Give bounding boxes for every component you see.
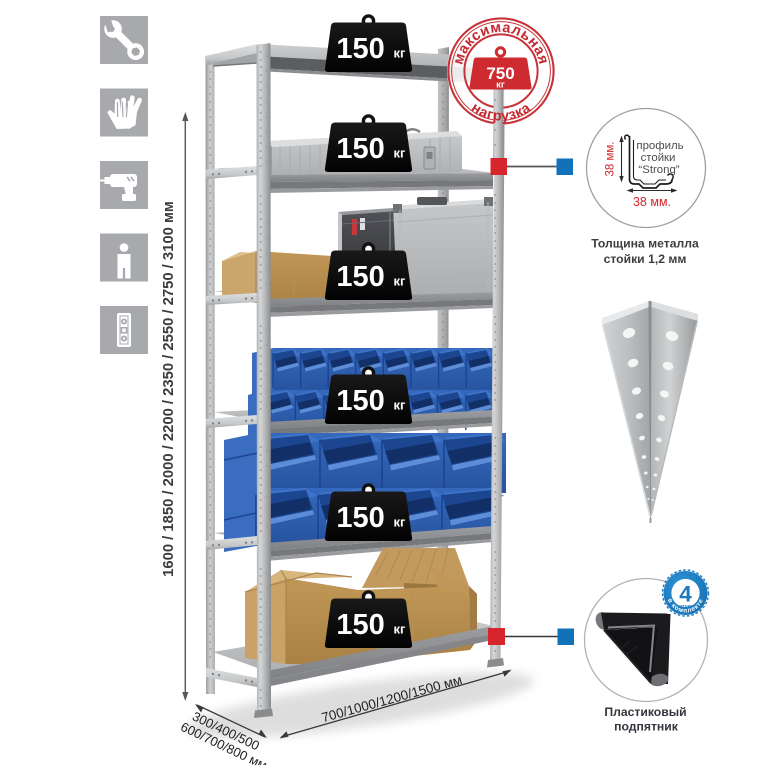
svg-text:подпятник: подпятник [614,720,679,734]
svg-text:Толщина металла: Толщина металла [591,237,699,251]
svg-text:кг: кг [496,80,505,91]
svg-text:1600 / 1850 / 2000 / 2200 / 23: 1600 / 1850 / 2000 / 2200 / 2350 / 2550 … [161,201,177,577]
svg-text:профиль: профиль [636,140,683,152]
svg-text:38 мм.: 38 мм. [633,195,671,209]
svg-text:Пластиковый: Пластиковый [604,705,686,719]
svg-text:стойки: стойки [641,152,676,164]
svg-text:“Strong”: “Strong” [638,164,679,176]
svg-text:стойки 1,2 мм: стойки 1,2 мм [604,252,687,266]
svg-text:4: 4 [679,582,692,607]
svg-text:38 мм.: 38 мм. [605,142,617,177]
